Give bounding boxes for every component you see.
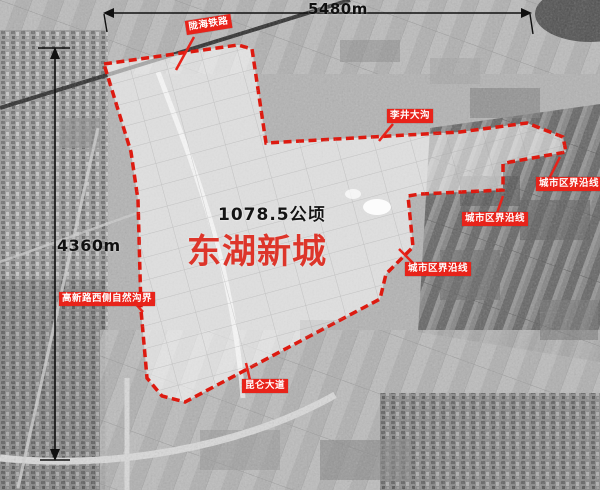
satellite-planning-map: 5480m 4360m 1078.5公顷 东湖新城 陇海铁路 李井大沟 城市区界… <box>0 0 600 490</box>
site-area-label: 1078.5公顷 <box>218 200 326 225</box>
site-title: 东湖新城 <box>187 224 327 273</box>
label-lijing-ditch: 李井大沟 <box>387 109 433 123</box>
label-city-boundary-c: 城市区界沿线 <box>405 262 471 276</box>
white-pond <box>363 199 391 215</box>
label-city-boundary-a: 城市区界沿线 <box>536 177 600 191</box>
height-dimension-label: 4360m <box>57 236 121 255</box>
label-city-boundary-b: 城市区界沿线 <box>462 212 528 226</box>
width-dimension-label: 5480m <box>308 0 368 18</box>
label-kunlun-avenue: 昆仑大道 <box>242 379 288 393</box>
label-gaoxin-natural-ditch: 高新路西侧自然沟界 <box>59 292 155 306</box>
